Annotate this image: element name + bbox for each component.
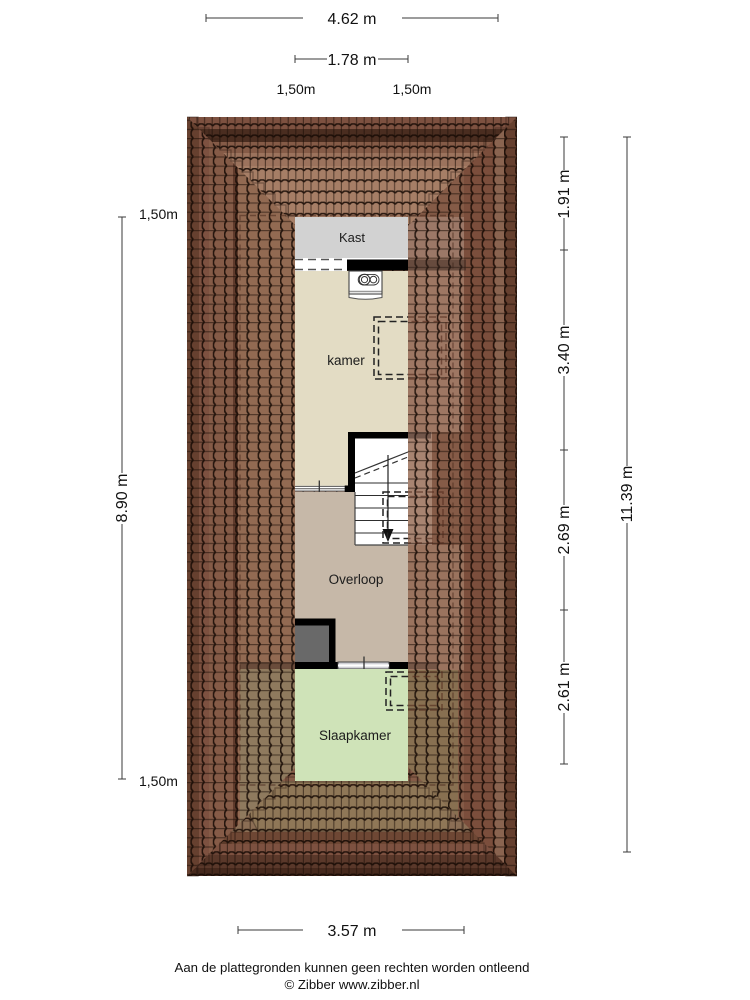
svg-text:1,50m: 1,50m — [277, 81, 316, 97]
svg-text:1,50m: 1,50m — [393, 81, 432, 97]
svg-text:1,50m: 1,50m — [139, 773, 178, 789]
svg-text:Aan de plattegronden kunnen ge: Aan de plattegronden kunnen geen rechten… — [175, 960, 530, 975]
svg-text:11.39 m: 11.39 m — [619, 466, 636, 523]
svg-text:© Zibber www.zibber.nl: © Zibber www.zibber.nl — [284, 977, 419, 992]
svg-text:3.57 m: 3.57 m — [328, 923, 377, 940]
svg-text:8.90 m: 8.90 m — [114, 474, 131, 523]
svg-text:4.62 m: 4.62 m — [328, 11, 377, 28]
svg-text:Overloop: Overloop — [329, 572, 384, 587]
svg-text:2.61 m: 2.61 m — [556, 663, 573, 712]
svg-text:1,50m: 1,50m — [139, 206, 178, 222]
svg-text:1.78 m: 1.78 m — [328, 52, 377, 69]
svg-text:1.91 m: 1.91 m — [556, 170, 573, 219]
svg-text:3.40 m: 3.40 m — [556, 326, 573, 375]
svg-text:Kast: Kast — [339, 230, 365, 245]
svg-text:2.69 m: 2.69 m — [556, 506, 573, 555]
svg-text:Slaapkamer: Slaapkamer — [319, 728, 392, 743]
svg-text:kamer: kamer — [327, 353, 365, 368]
